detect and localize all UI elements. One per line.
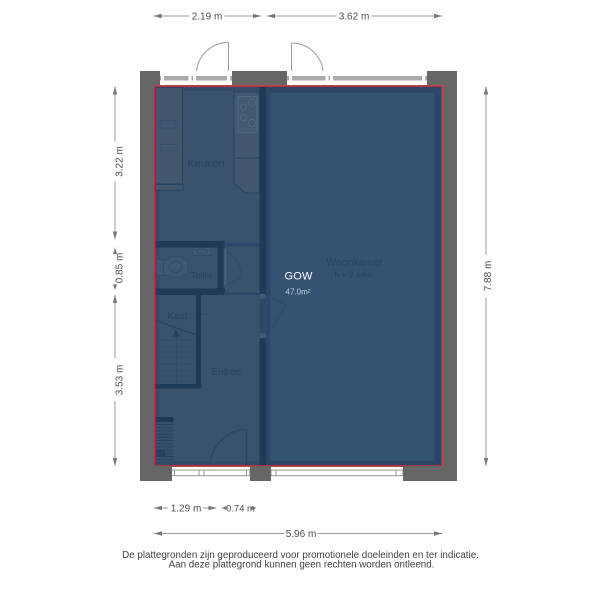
svg-text:GOW: GOW: [284, 271, 313, 283]
svg-text:3.53 m: 3.53 m: [115, 365, 126, 396]
svg-text:2.19 m: 2.19 m: [192, 12, 223, 23]
svg-text:Keuken: Keuken: [187, 158, 224, 170]
svg-text:0.85 m: 0.85 m: [115, 253, 126, 284]
svg-text:Woonkamer: Woonkamer: [326, 257, 383, 269]
svg-text:7.88 m: 7.88 m: [483, 261, 494, 292]
svg-text:0.74 m: 0.74 m: [226, 504, 255, 514]
svg-text:3.22 m: 3.22 m: [115, 146, 126, 177]
svg-text:47.0m²: 47.0m²: [286, 288, 311, 297]
svg-text:Entree: Entree: [212, 367, 242, 378]
svg-text:h + 2.64m: h + 2.64m: [334, 270, 372, 280]
svg-text:3.62 m: 3.62 m: [339, 12, 370, 23]
svg-text:1.29 m: 1.29 m: [171, 504, 202, 515]
svg-text:5.96 m: 5.96 m: [286, 529, 317, 540]
svg-text:Kast: Kast: [167, 311, 187, 322]
svg-text:Toilet: Toilet: [191, 271, 213, 281]
svg-text:Aan deze plattegrond kunnen ge: Aan deze plattegrond kunnen geen rechten…: [169, 560, 435, 571]
